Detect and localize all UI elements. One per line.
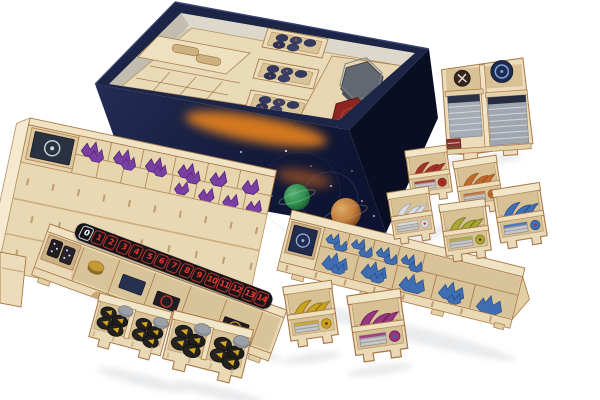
photo-illustration [0, 0, 600, 400]
faction-tray-white [387, 186, 437, 245]
faction-tray-yellow [283, 280, 340, 348]
green-planet [284, 184, 310, 210]
card-stack-left [447, 94, 482, 138]
faction-tray-olive [439, 199, 493, 263]
wood-corner-piece [0, 252, 26, 307]
faction-tray-magenta [347, 289, 410, 363]
product-photo-board-game-insert: 0 1 2 3 4 5 6 7 8 9 10 11 12 13 14 [0, 0, 600, 400]
faction-tray-blue [492, 182, 549, 249]
card-stack-right [488, 95, 529, 146]
card-holder-tray [439, 58, 534, 162]
